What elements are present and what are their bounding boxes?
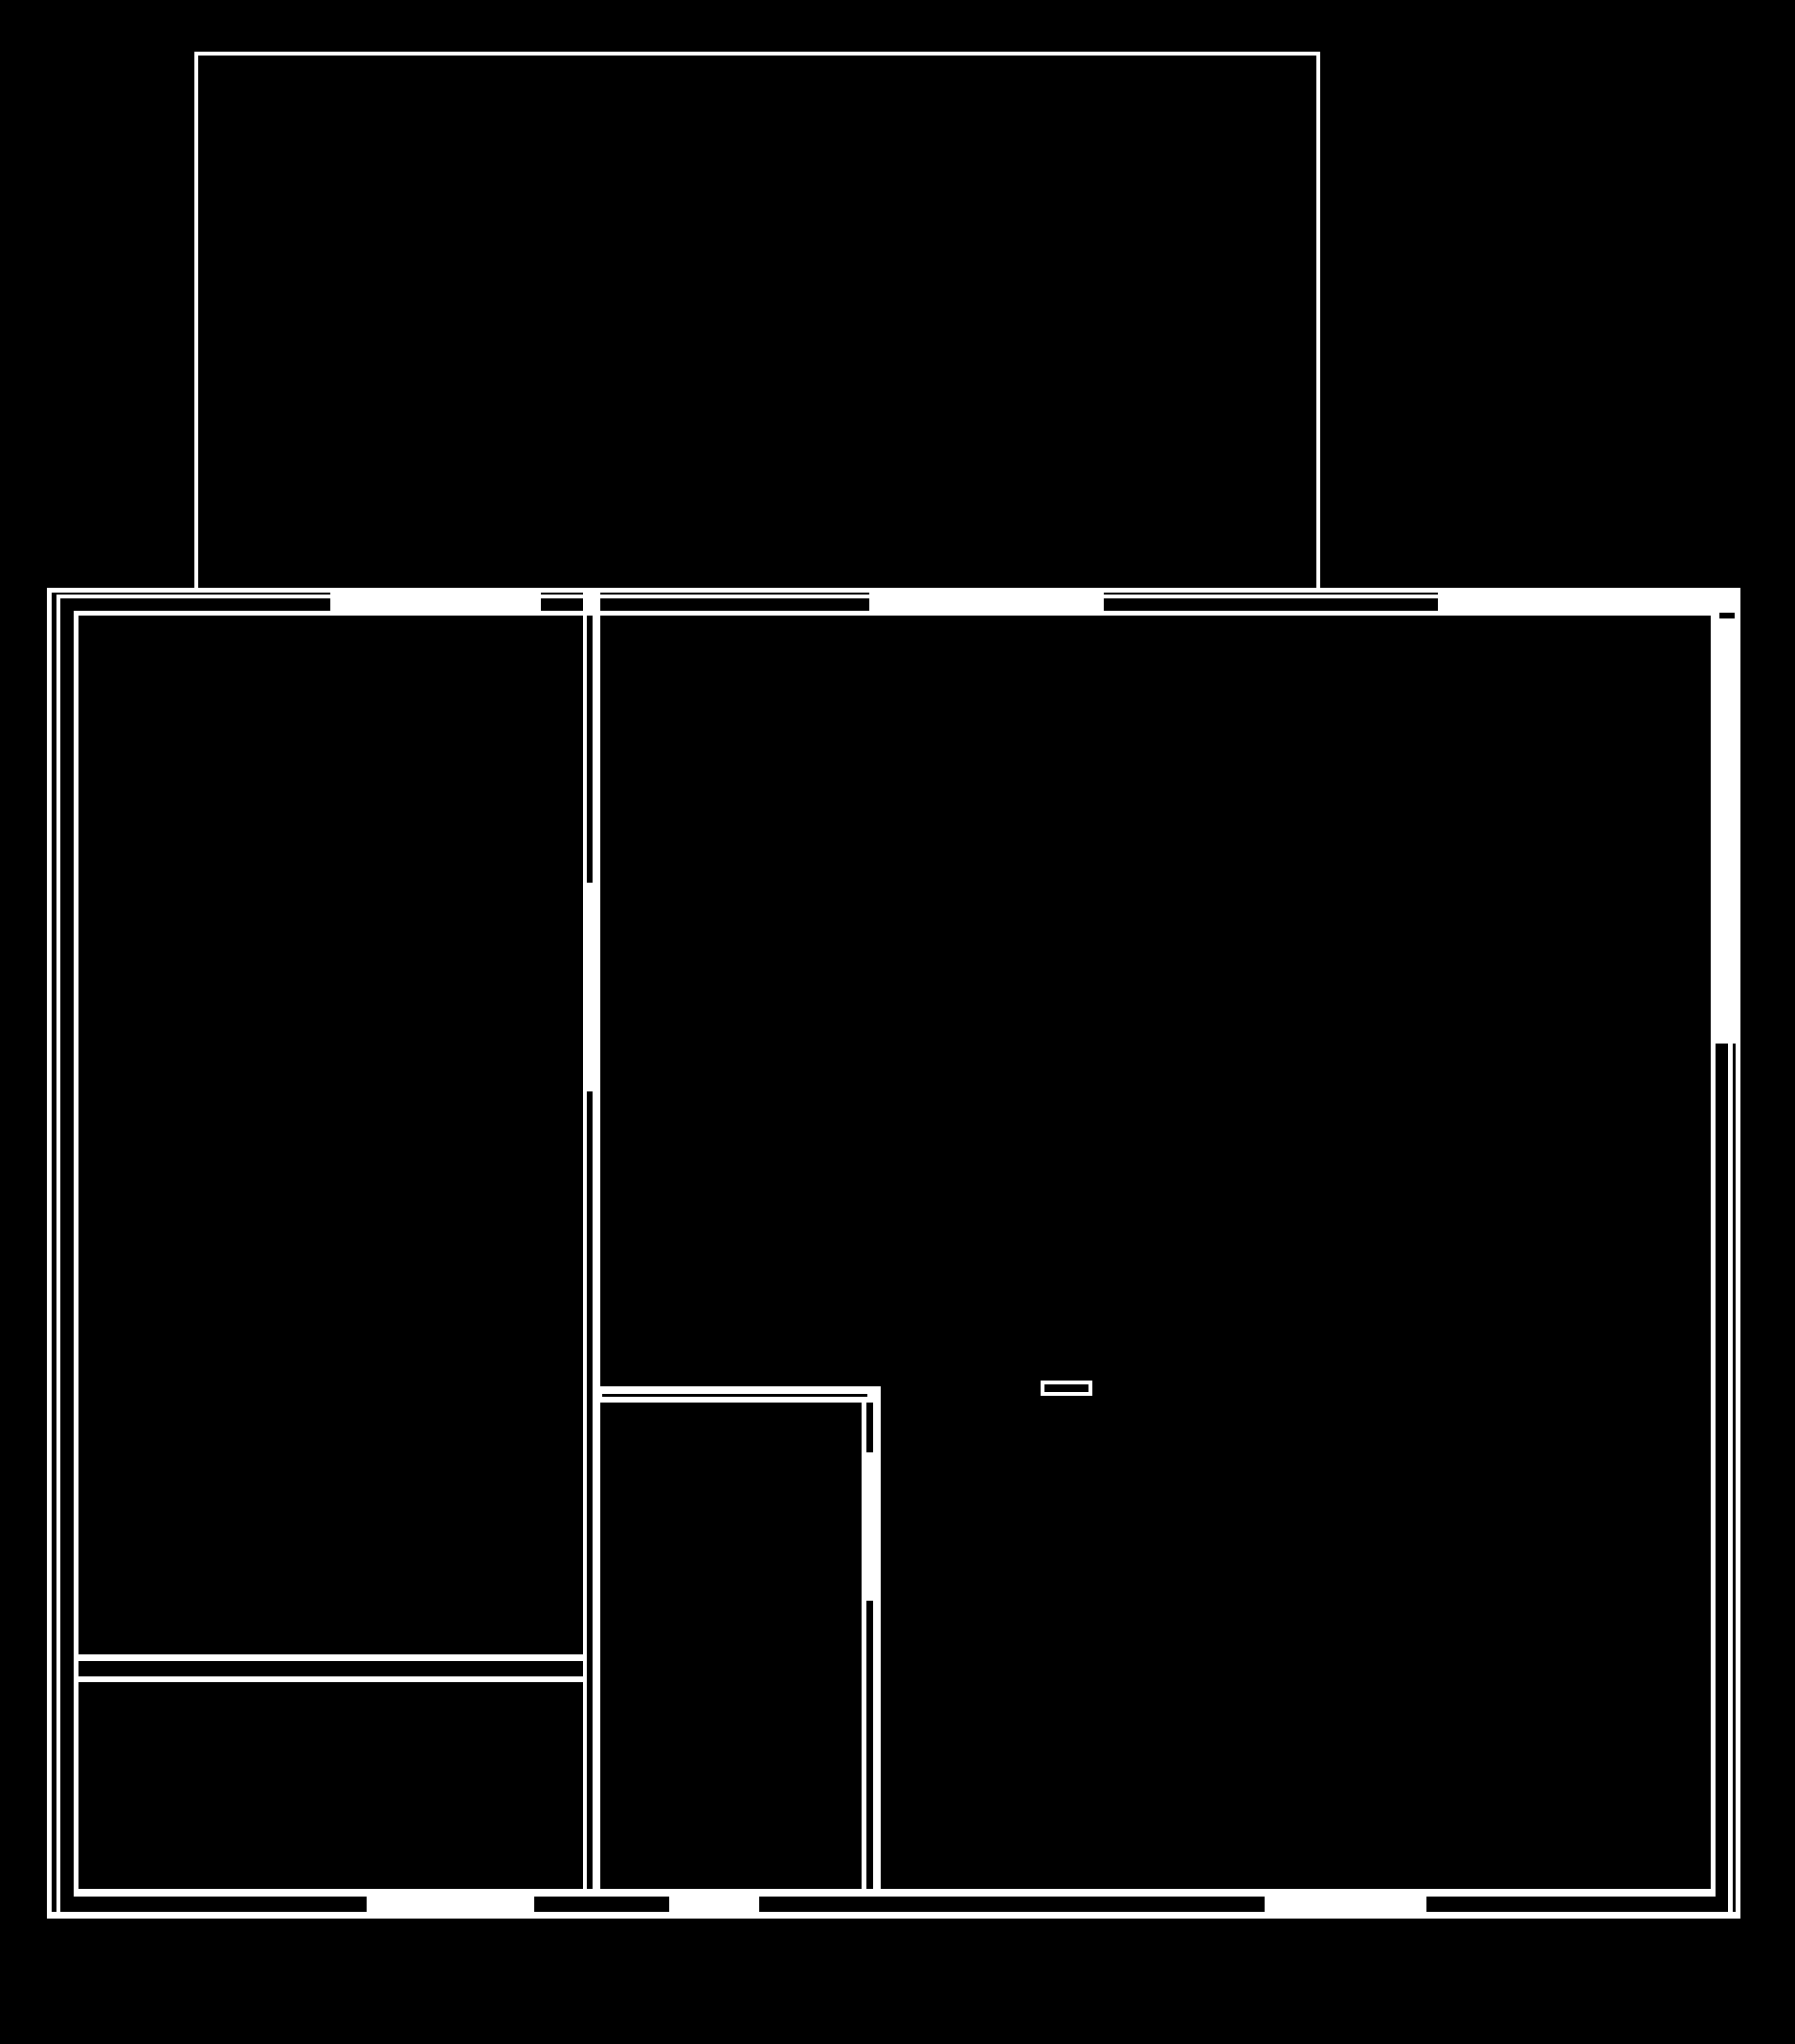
room-lower-left (79, 1682, 583, 1889)
floor-plan (0, 0, 1795, 2044)
window-top-wall-3-corner (1438, 588, 1740, 616)
room-garage (198, 56, 1316, 588)
small-room-right-wall-core-upper (866, 1403, 873, 1452)
window-bottom-wall-1 (367, 1889, 534, 1919)
house-left-wall-mid-line (56, 595, 60, 1912)
furniture-core (1044, 1384, 1088, 1392)
window-bottom-wall-2 (669, 1889, 759, 1919)
window-top-wall-1 (330, 588, 541, 616)
window-top-wall-2 (869, 588, 1104, 616)
small-room-right-wall-core-lower (866, 1601, 873, 1889)
right-wall-corner-tick (1719, 613, 1735, 618)
garage-outline-right (1316, 52, 1320, 588)
interior-wall-vertical-left-line (583, 594, 587, 1889)
door-opening-vertical-wall (583, 883, 600, 1091)
window-bottom-wall-3 (1265, 1889, 1426, 1919)
house-left-wall-outer-line (47, 588, 52, 1919)
interior-wall-horizontal-top-line (77, 1654, 583, 1661)
garage-outline-top (194, 52, 1320, 56)
interior-wall-vertical-top-junction-fill (583, 592, 600, 611)
interior-wall-vertical-right-line (593, 594, 600, 1889)
house-bottom-wall-outer-line (47, 1912, 1740, 1919)
window-right-wall (1711, 588, 1740, 1044)
small-room-top-wall-core (602, 1394, 867, 1397)
interior-wall-horizontal-bottom-line (77, 1676, 583, 1682)
garage-outline-left (194, 52, 198, 588)
room-upper-left (79, 616, 583, 1654)
house-bottom-wall-inner-line (74, 1889, 1716, 1897)
house-left-wall-inner-line (74, 611, 79, 1897)
room-small-bottom (600, 1403, 866, 1889)
